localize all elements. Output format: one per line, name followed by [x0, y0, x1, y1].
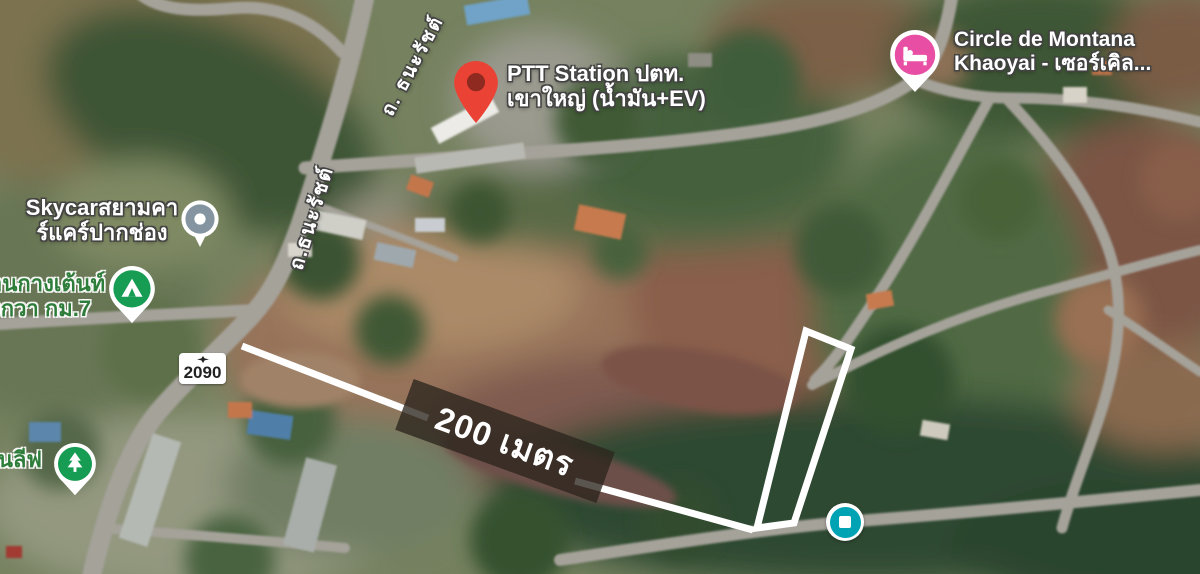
route-shield: 2090: [179, 353, 226, 384]
skycar-label[interactable]: Skycarสยามคา ร์แคร์ปากช่อง: [22, 196, 182, 245]
lodging-pin-icon[interactable]: [890, 30, 940, 93]
greenleaf-label[interactable]: รีนลีฟ: [0, 448, 42, 473]
highway-crest-icon: [197, 356, 209, 363]
transit-stop-icon[interactable]: [826, 503, 864, 541]
montana-label[interactable]: Circle de Montana Khaoyai - เซอร์เคิล...: [954, 28, 1151, 75]
ptt-station-pin-icon[interactable]: [454, 61, 498, 123]
satellite-map[interactable]: 200 เมตร ถ. ธนะรัชต์ ถ.ธนะรัชต์ 2090 PTT…: [0, 0, 1200, 574]
ptt-station-label[interactable]: PTT Station ปตท. เขาใหญ่ (น้ำมัน+EV): [507, 62, 706, 111]
route-number: 2090: [184, 364, 222, 381]
tree-pin-icon[interactable]: [54, 443, 96, 496]
campground-label[interactable]: านกางเต้นท์ งกวา กม.7: [0, 272, 105, 321]
poi-dot-icon[interactable]: [180, 199, 220, 249]
campground-pin-icon[interactable]: [109, 266, 155, 324]
